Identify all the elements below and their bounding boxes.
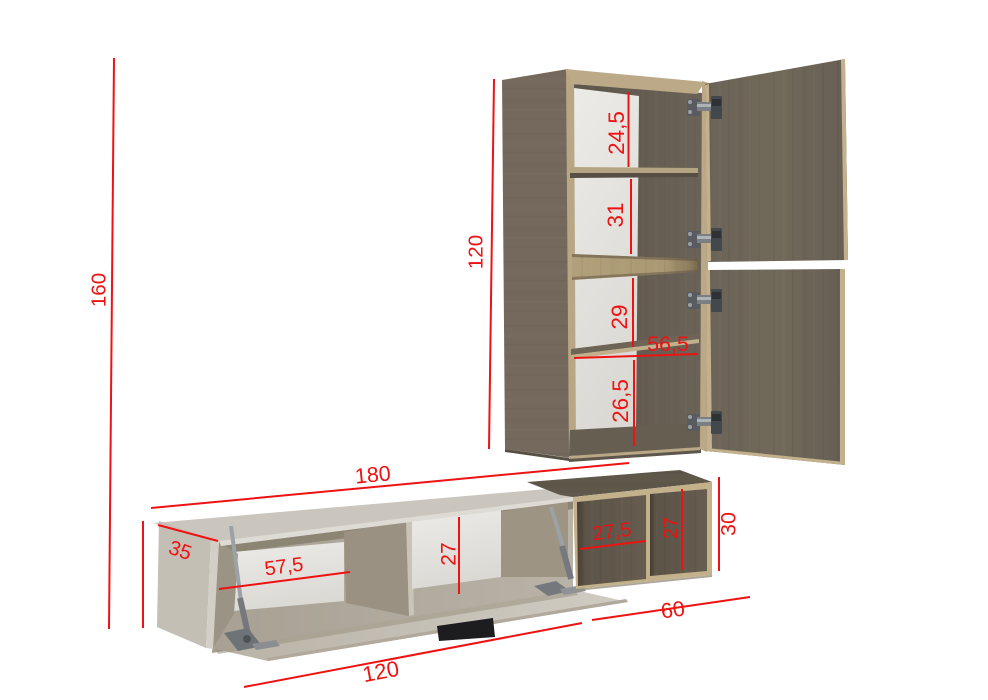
svg-text:160: 160: [87, 273, 110, 307]
svg-text:30: 30: [717, 512, 741, 536]
svg-text:24,5: 24,5: [604, 111, 629, 155]
svg-text:31: 31: [603, 202, 628, 227]
svg-text:180: 180: [354, 461, 392, 488]
svg-text:56,5: 56,5: [647, 332, 689, 356]
svg-text:27: 27: [438, 542, 461, 565]
svg-text:60: 60: [659, 596, 686, 623]
svg-text:27,5: 27,5: [591, 519, 632, 546]
svg-text:120: 120: [464, 235, 487, 269]
svg-text:26,5: 26,5: [608, 379, 633, 423]
svg-text:29: 29: [607, 304, 632, 329]
svg-text:27: 27: [660, 517, 682, 539]
